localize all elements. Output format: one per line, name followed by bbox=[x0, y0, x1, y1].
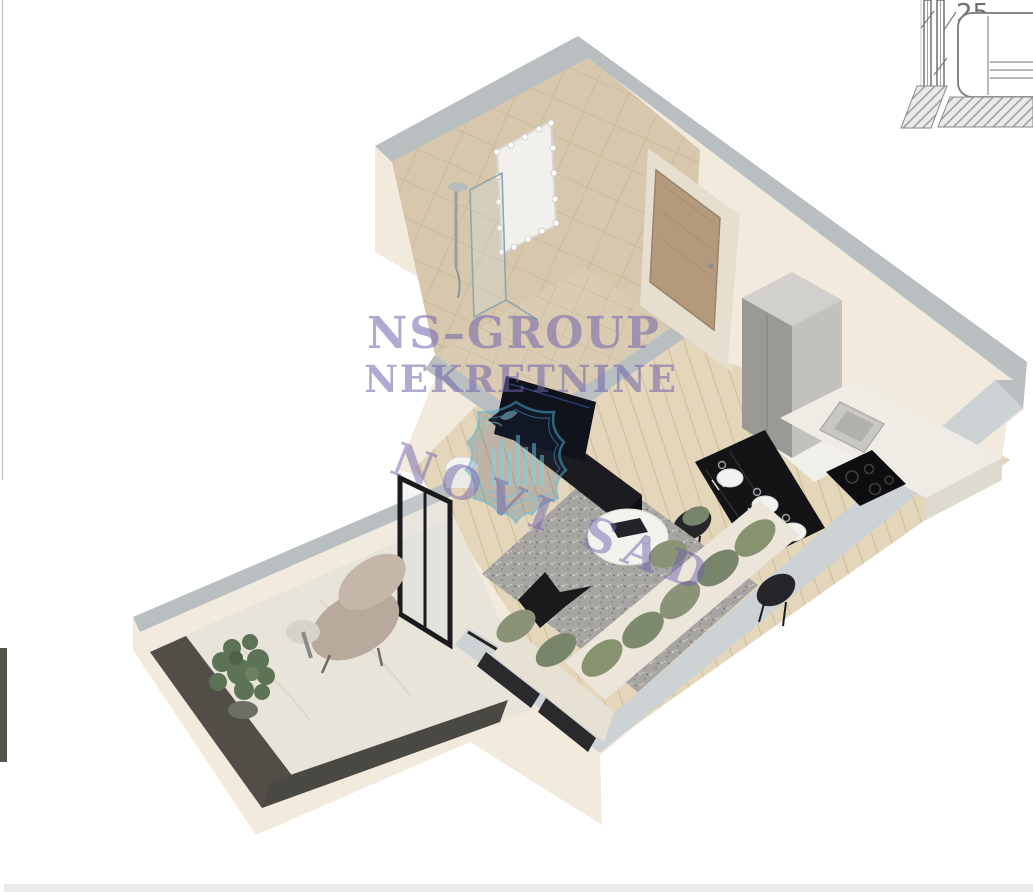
door-handle bbox=[708, 263, 714, 269]
plate bbox=[717, 469, 743, 487]
sofa-plan-outline bbox=[958, 13, 1033, 97]
plant-leaf bbox=[245, 667, 259, 681]
plant-pot bbox=[228, 701, 258, 719]
technical-drawing-fragment: 25 bbox=[901, 0, 1033, 128]
shower-head bbox=[448, 183, 468, 192]
apartment-3d-render bbox=[133, 36, 1027, 835]
watermark-agency-subtitle: NEKRETNINE bbox=[364, 357, 678, 401]
adjacent-render-fragment bbox=[0, 648, 7, 762]
shower-glass-panel bbox=[470, 173, 506, 317]
plant-leaf bbox=[229, 651, 243, 665]
dimension-leader bbox=[944, 12, 956, 30]
floorplan-3d-scene: 25 bbox=[0, 0, 1033, 892]
wall-section-hatch bbox=[938, 97, 1033, 127]
real-estate-render-page: 25 bbox=[0, 0, 1033, 892]
page-bottom-border bbox=[4, 884, 1033, 892]
watermark-agency-name: NS–GROUP bbox=[367, 308, 661, 359]
